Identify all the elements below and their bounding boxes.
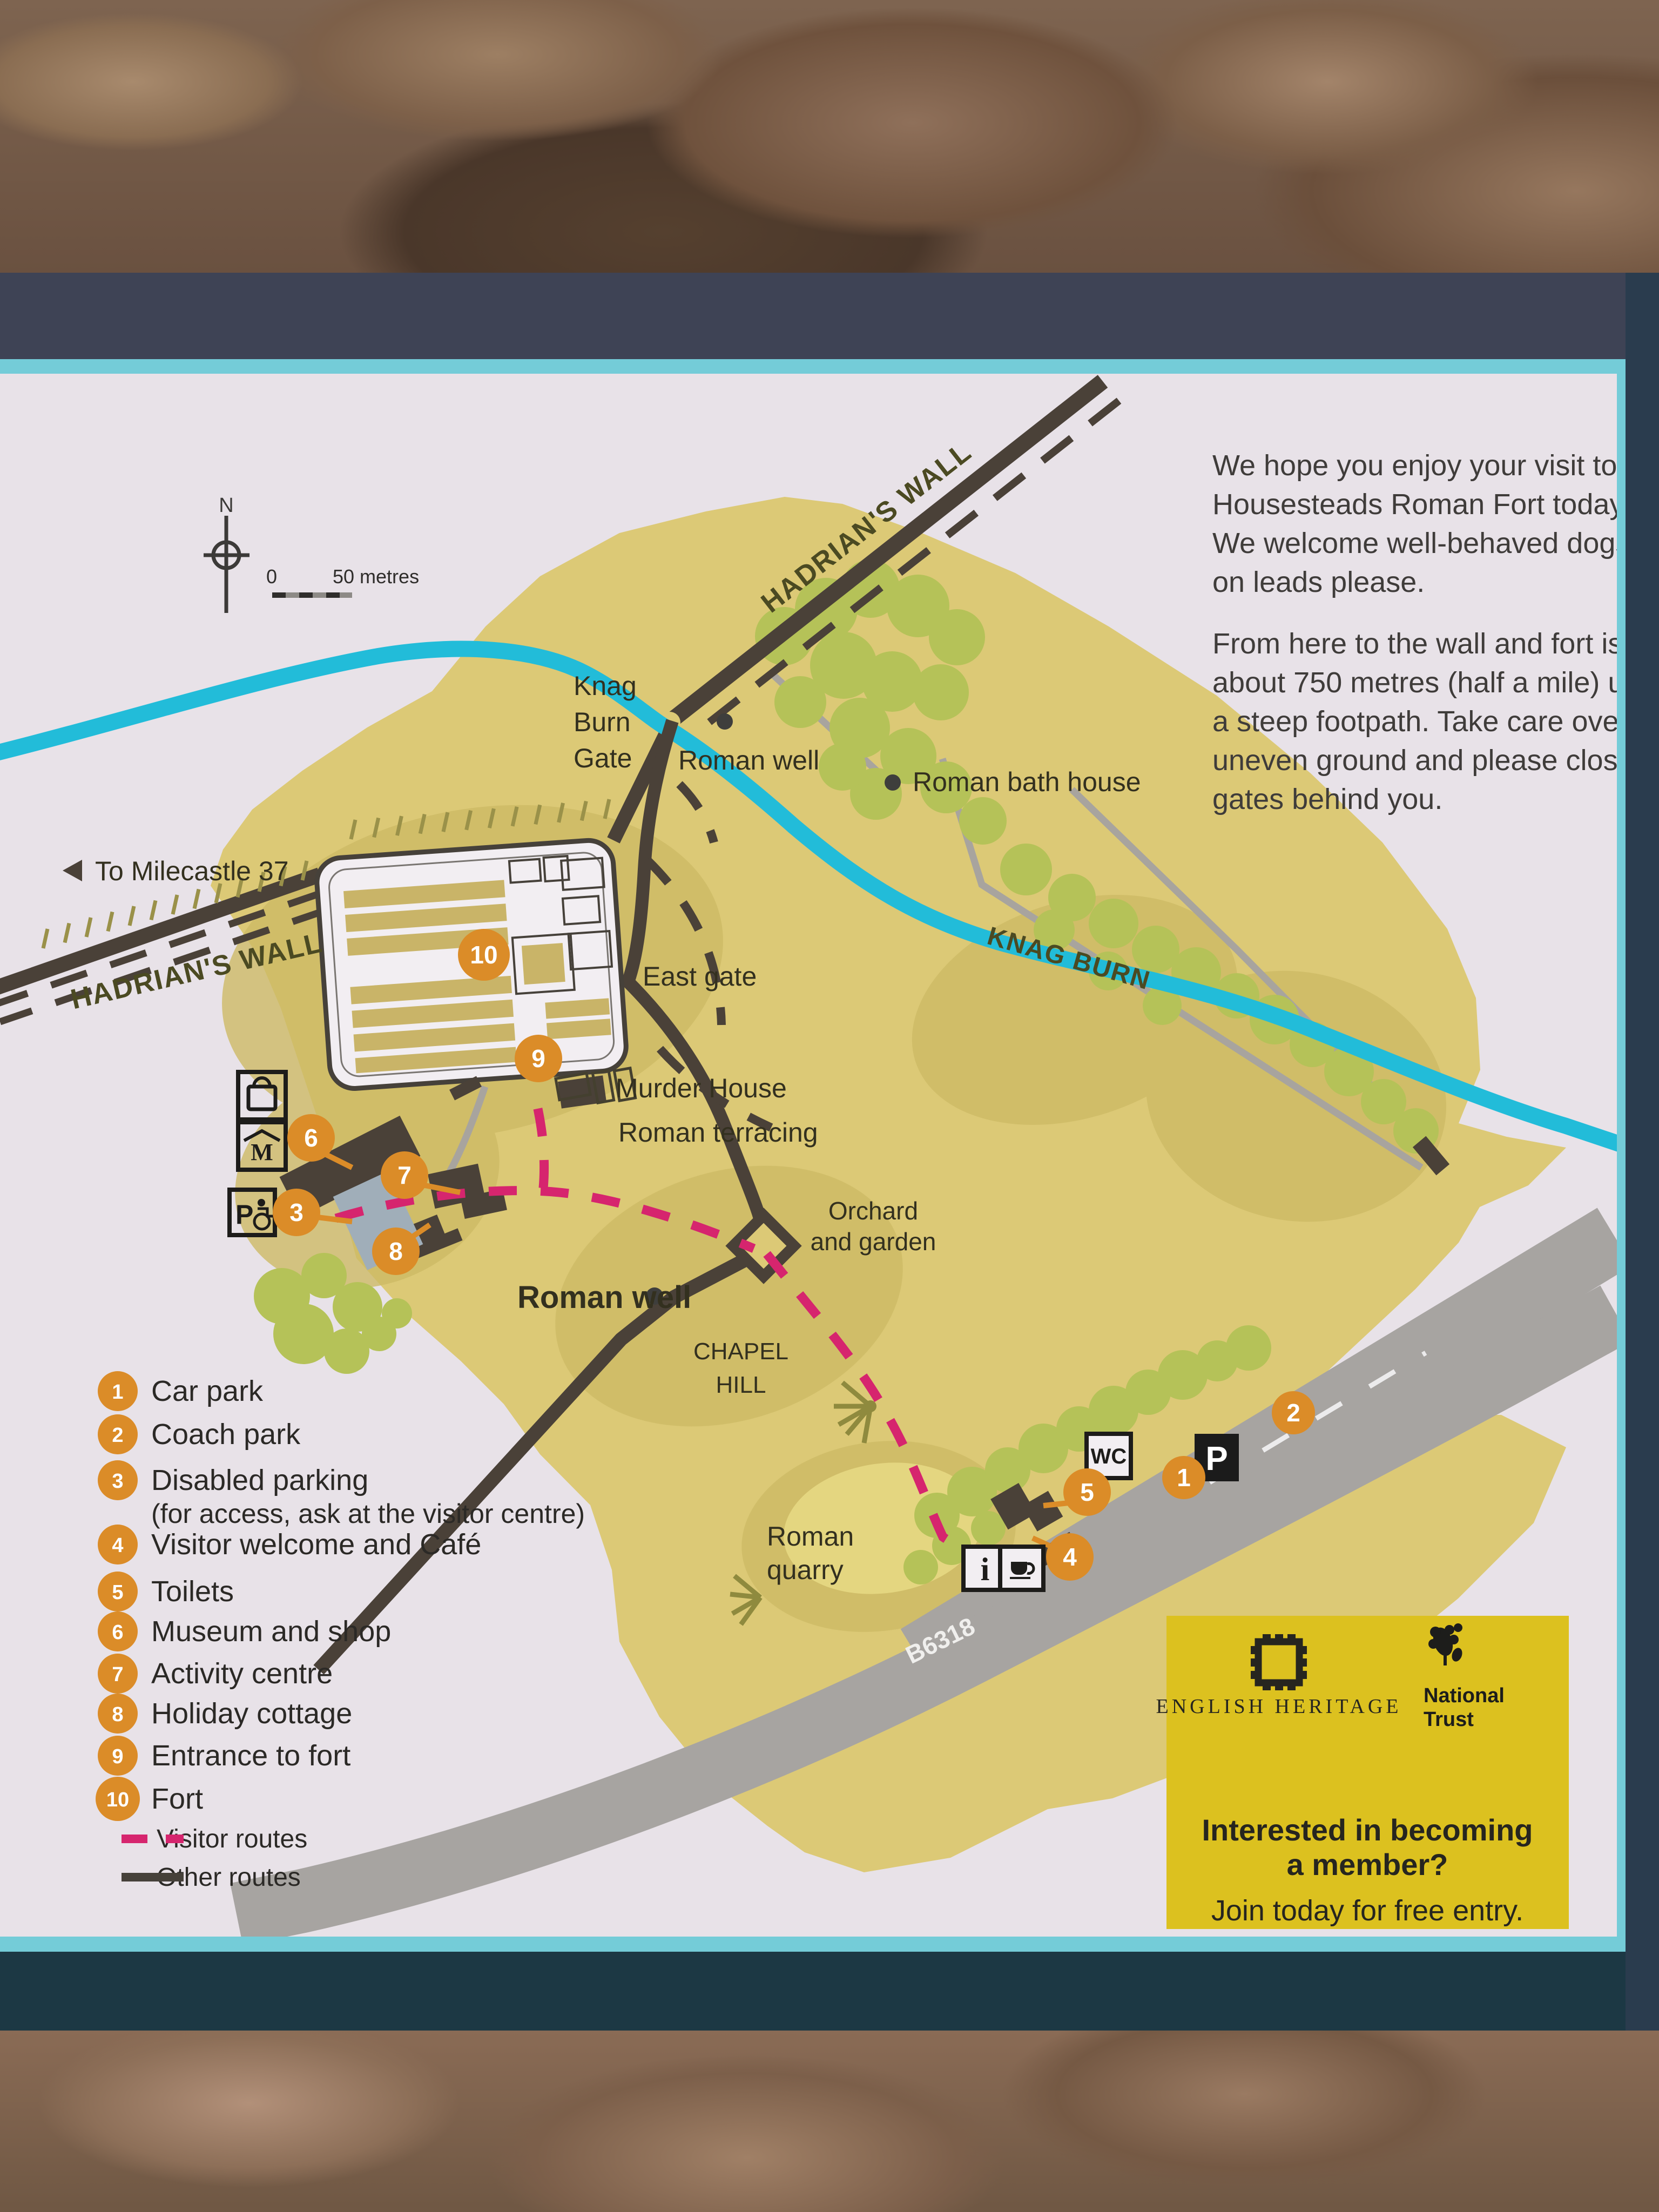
- svg-text:about 750 metres (half a mile): about 750 metres (half a mile) up: [1212, 666, 1617, 699]
- marker-7: 7: [381, 1151, 428, 1199]
- svg-text:1: 1: [112, 1381, 123, 1404]
- svg-text:10: 10: [470, 941, 497, 969]
- scale-zero: 0: [266, 565, 277, 588]
- marker-9: 9: [515, 1035, 562, 1082]
- stone-wall-top: [0, 0, 1659, 273]
- tree: [903, 1550, 938, 1584]
- svg-text:2: 2: [112, 1424, 123, 1447]
- tree: [382, 1298, 412, 1328]
- tree: [971, 1511, 1006, 1546]
- national-trust-label-2: Trust: [1424, 1708, 1474, 1731]
- legend-coach-park: Coach park: [151, 1418, 301, 1451]
- legend-car-park: Car park: [151, 1375, 264, 1407]
- roman-bath-house-dot: [885, 774, 901, 791]
- legend-entrance-fort: Entrance to fort: [151, 1739, 350, 1772]
- svg-text:8: 8: [112, 1703, 123, 1726]
- label-knag-burn-gate-1: Knag: [574, 671, 637, 701]
- legend-fort: Fort: [151, 1783, 203, 1815]
- label-roman-bath-house: Roman bath house: [913, 767, 1141, 797]
- membership-cta: Join today for free entry.: [1211, 1894, 1523, 1927]
- legend-toilets: Toilets: [151, 1575, 234, 1608]
- tree: [819, 743, 866, 791]
- svg-text:We hope you enjoy your visit t: We hope you enjoy your visit to: [1212, 449, 1617, 482]
- svg-text:3: 3: [112, 1470, 123, 1493]
- svg-text:4: 4: [1063, 1543, 1077, 1571]
- label-orchard-1: Orchard: [828, 1197, 918, 1225]
- label-orchard-2: and garden: [811, 1228, 936, 1256]
- svg-text:P: P: [235, 1199, 253, 1230]
- svg-text:4: 4: [112, 1534, 123, 1557]
- svg-text:on leads please.: on leads please.: [1212, 566, 1425, 598]
- tree: [913, 664, 969, 720]
- sign-frame-right: [1626, 273, 1659, 2031]
- legend-museum-shop: Museum and shop: [151, 1615, 391, 1648]
- svg-text:6: 6: [112, 1621, 123, 1644]
- marker-6: 6: [287, 1114, 335, 1162]
- legend-activity-centre: Activity centre: [151, 1657, 333, 1690]
- svg-text:5: 5: [112, 1581, 123, 1604]
- svg-text:From here to the wall and fort: From here to the wall and fort is: [1212, 628, 1617, 660]
- cafe-icon: [1000, 1547, 1043, 1590]
- svg-text:gates behind you.: gates behind you.: [1212, 783, 1442, 815]
- tree: [929, 609, 985, 665]
- panel-border-top: [0, 359, 1626, 374]
- label-roman-quarry-1: Roman: [767, 1521, 854, 1552]
- marker-8: 8: [372, 1228, 420, 1275]
- membership-box: ENGLISH HERITAGE National Trust Interest…: [1156, 1616, 1569, 1929]
- marker-1: 1: [1162, 1456, 1205, 1499]
- svg-text:8: 8: [389, 1237, 403, 1265]
- national-trust-label-1: National: [1424, 1684, 1505, 1707]
- label-chapel-hill-2: HILL: [716, 1372, 766, 1398]
- svg-text:WC: WC: [1091, 1445, 1127, 1468]
- label-east-gate: East gate: [643, 961, 757, 992]
- svg-text:6: 6: [304, 1124, 318, 1152]
- svg-text:2: 2: [1286, 1399, 1300, 1427]
- legend-disabled-note: (for access, ask at the visitor centre): [151, 1499, 585, 1529]
- svg-text:10: 10: [106, 1789, 129, 1811]
- svg-text:M: M: [251, 1139, 273, 1165]
- label-knag-burn-gate-2: Burn: [574, 707, 631, 737]
- tree: [1089, 899, 1138, 948]
- svg-text:3: 3: [289, 1198, 304, 1226]
- svg-text:uneven ground and please close: uneven ground and please close: [1212, 744, 1617, 777]
- marker-4: 4: [1046, 1533, 1094, 1581]
- tree: [1000, 844, 1052, 895]
- svg-text:5: 5: [1080, 1478, 1094, 1506]
- marker-3: 3: [273, 1189, 320, 1236]
- panel-border-right: [1617, 374, 1626, 1937]
- marker-5: 5: [1063, 1468, 1111, 1516]
- tree: [774, 676, 826, 728]
- label-chapel-hill-1: CHAPEL: [693, 1338, 788, 1365]
- sign-frame-top: [0, 273, 1659, 359]
- marker-2: 2: [1272, 1391, 1315, 1434]
- label-roman-well-lower: Roman well: [517, 1280, 691, 1315]
- legend-disabled-parking: Disabled parking: [151, 1464, 368, 1496]
- membership-headline-2: a member?: [1287, 1847, 1448, 1881]
- svg-text:We welcome well-behaved dogs,: We welcome well-behaved dogs,: [1212, 527, 1617, 559]
- sign-frame-bottom: [0, 1952, 1659, 2031]
- svg-text:i: i: [981, 1552, 990, 1587]
- stone-wall-bottom: [0, 2031, 1659, 2212]
- svg-text:P: P: [1205, 1440, 1228, 1478]
- legend-visitor-welcome: Visitor welcome and Café: [151, 1528, 481, 1561]
- label-roman-well-top: Roman well: [678, 745, 819, 775]
- english-heritage-label: ENGLISH HERITAGE: [1156, 1695, 1402, 1718]
- label-murder-house: Murder House: [616, 1073, 787, 1103]
- welcome-text: We hope you enjoy your visit to Houseste…: [1212, 449, 1617, 815]
- scale-label: 50 metres: [333, 565, 419, 588]
- label-roman-terracing: Roman terracing: [618, 1117, 818, 1148]
- svg-text:7: 7: [112, 1663, 123, 1686]
- svg-text:1: 1: [1177, 1464, 1191, 1492]
- svg-text:Housesteads Roman Fort today.: Housesteads Roman Fort today.: [1212, 488, 1617, 521]
- svg-text:a steep footpath. Take care ov: a steep footpath. Take care over: [1212, 705, 1617, 738]
- legend-holiday-cottage: Holiday cottage: [151, 1697, 352, 1730]
- svg-text:9: 9: [531, 1044, 545, 1073]
- marker-10: 10: [458, 929, 510, 981]
- membership-headline-1: Interested in becoming: [1202, 1813, 1533, 1847]
- compass-north-label: N: [219, 494, 233, 517]
- svg-text:9: 9: [112, 1745, 123, 1768]
- panel-border-bottom: [0, 1937, 1626, 1952]
- tree: [959, 797, 1007, 845]
- tree: [1226, 1325, 1271, 1371]
- label-knag-burn-gate-3: Gate: [574, 743, 632, 773]
- svg-text:7: 7: [397, 1161, 412, 1189]
- map-panel: HADRIAN'S WALL HADRIAN'S WALL KNAG BURN …: [0, 374, 1617, 1937]
- label-roman-quarry-2: quarry: [767, 1555, 844, 1585]
- roman-well-top-dot: [717, 713, 733, 730]
- label-to-milecastle: To Milecastle 37: [95, 856, 289, 886]
